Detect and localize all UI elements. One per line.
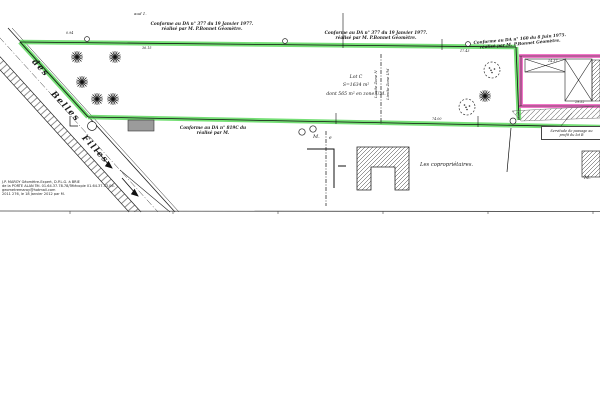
dimension-label: 17.43 [460, 50, 469, 54]
dimension-label: 36.15 [142, 47, 151, 51]
owner-m-label: M. [313, 135, 320, 141]
cadastral-plan-sheet: aud 1. Conforme au DA n° 377 du 19 Janvi… [0, 0, 600, 417]
building-on-road [128, 120, 154, 131]
tree-icon [71, 51, 491, 105]
dimension-label: 74.00 [432, 118, 441, 122]
owner-e-label: e [329, 136, 332, 141]
coproprietaires-label: Les copropriétaires. [420, 163, 473, 169]
building-u-shaped [357, 147, 409, 190]
sheet-frame [0, 211, 600, 214]
building-right-edge [582, 151, 600, 177]
plan-drawing [0, 0, 600, 417]
top-note: aud 1. [134, 12, 147, 17]
building-hatched-strip [592, 60, 600, 101]
conformity-note-d: Conforme au DA n° 819C du réalisé par M. [166, 126, 260, 136]
boundary-corner-mark [307, 149, 334, 188]
surveyor-title-block: J.P. MAROY Géomètre-Expert, D.P.L.G. à B… [2, 180, 115, 197]
dimension-label: 14.37 [548, 60, 557, 64]
owner-m-right-label: M. [584, 176, 591, 182]
conformity-note-b: Conforme au DA n° 377 du 19 Janvier 1977… [316, 31, 436, 41]
conformity-note-a: Conforme au DA n° 377 du 19 Janvier 1977… [118, 22, 286, 32]
zone-limit-um-label: Limite Zone UM [386, 51, 390, 117]
building-cross-a [525, 59, 566, 72]
dimension-label: 0.94 [66, 32, 73, 36]
zone-limit-n-label: Limite Zone N [374, 53, 378, 115]
shrub-icon [459, 62, 500, 115]
building-cross-b [565, 59, 592, 101]
dimension-label: 29.52 [575, 101, 584, 105]
servitude-label-box: Servitude de passage au profit du lot B [541, 126, 600, 140]
zone-boundary-pink [519, 56, 600, 106]
surveyor-line4: 2011 276, le 18 Janvier 2012 par M. [2, 192, 115, 196]
